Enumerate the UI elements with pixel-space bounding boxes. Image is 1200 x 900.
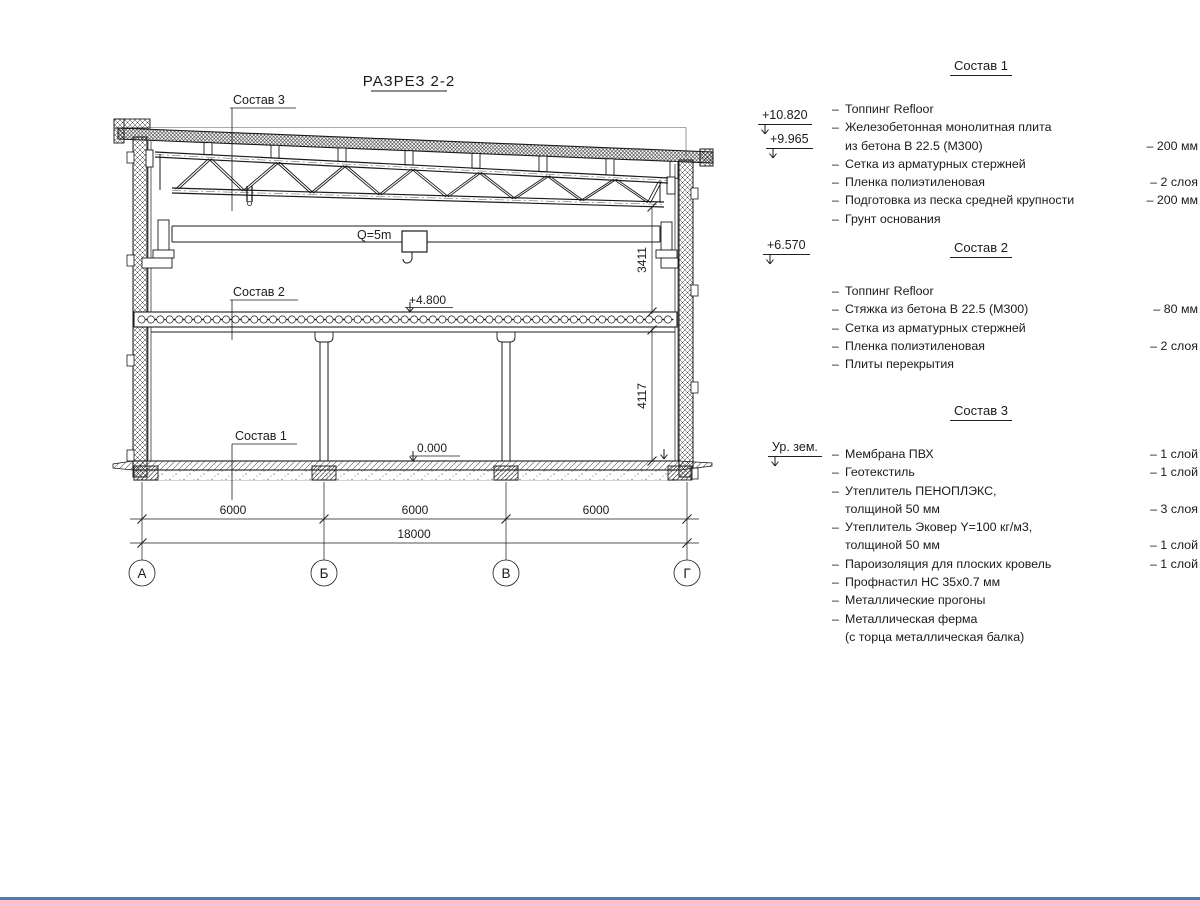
axis-V: В	[501, 566, 510, 581]
material-row: –Мембрана ПВХ– 1 слой	[832, 445, 1198, 463]
material-list-sostav-3: Состав 3 –Мембрана ПВХ– 1 слой–Геотексти…	[832, 402, 1198, 646]
dim-total: 18000	[397, 527, 431, 541]
sand-bed	[133, 470, 676, 480]
crane-beam: Q=5m	[142, 220, 678, 268]
axis-G: Г	[683, 566, 691, 581]
column-B-axis	[315, 332, 333, 461]
elevation-label: +6.570	[767, 238, 806, 252]
elevation-slab: +4.800	[405, 293, 453, 308]
elevation-label: Ур. зем.	[772, 440, 818, 454]
material-row: –Стяжка из бетона В 22.5 (М300)– 80 мм	[832, 300, 1198, 318]
vertical-dimensions: 3411 4117	[635, 206, 652, 462]
svg-text:0.000: 0.000	[417, 441, 447, 455]
material-items: –Топпинг Refloor–Стяжка из бетона В 22.5…	[832, 282, 1198, 373]
truss-bearing-right	[667, 177, 675, 194]
column-V-axis	[497, 332, 515, 461]
section-heading: Состав 3	[950, 403, 1012, 421]
material-row: –Утеплитель Эковер Y=100 кг/м3,	[832, 518, 1198, 536]
material-items: –Мембрана ПВХ– 1 слой–Геотекстиль– 1 сло…	[832, 445, 1198, 646]
material-items: –Топпинг Refloor–Железобетонная монолитн…	[832, 100, 1198, 228]
elevation-mark-6570: +6.570	[763, 238, 810, 255]
left-wall	[133, 137, 151, 477]
eave-end-cap	[700, 149, 713, 166]
material-row: –Сетка из арматурных стержней	[832, 155, 1198, 173]
material-row: –Пароизоляция для плоских кровель– 1 сло…	[832, 555, 1198, 573]
intermediate-slab	[134, 312, 677, 332]
svg-text:+4.800: +4.800	[409, 293, 446, 307]
material-row: –Плиты перекрытия	[832, 355, 1198, 373]
material-row: –Металлическая ферма	[832, 610, 1198, 628]
svg-text:Состав 3: Состав 3	[233, 93, 285, 107]
material-row: –Металлические прогоны	[832, 591, 1198, 609]
axis-B: Б	[320, 566, 329, 581]
material-row: толщиной 50 мм– 1 слой	[832, 536, 1198, 554]
section-heading: Состав 2	[950, 240, 1012, 258]
crane-capacity-label: Q=5m	[357, 228, 391, 242]
dim-4117: 4117	[635, 383, 649, 409]
svg-text:Состав 1: Состав 1	[235, 429, 287, 443]
dim-span-2: 6000	[402, 503, 429, 517]
dim-3411: 3411	[635, 247, 649, 273]
material-row: –Грунт основания	[832, 210, 1198, 228]
elevation-arrow-icon	[767, 148, 779, 162]
material-row: –Пленка полиэтиленовая– 2 слоя	[832, 337, 1198, 355]
drawing-title: РАЗРЕЗ 2-2	[363, 73, 456, 91]
material-row: –Пленка полиэтиленовая– 2 слоя	[832, 173, 1198, 191]
interior-columns	[315, 332, 515, 461]
right-wall	[675, 160, 693, 477]
svg-text:Состав 2: Состав 2	[233, 285, 285, 299]
material-row: –Подготовка из песка средней крупности– …	[832, 191, 1198, 209]
crane-hook	[403, 252, 412, 263]
dim-span-3: 6000	[583, 503, 610, 517]
material-row: –Железобетонная монолитная плита	[832, 118, 1198, 136]
material-list-sostav-2: Состав 2 –Топпинг Refloor–Стяжка из бето…	[832, 239, 1198, 373]
truss-bearing-left	[146, 150, 153, 167]
section-heading: Состав 1	[950, 58, 1012, 76]
material-row: из бетона В 22.5 (М300)– 200 мм	[832, 137, 1198, 155]
material-row: –Топпинг Refloor	[832, 100, 1198, 118]
elevation-mark-ground: Ур. зем.	[768, 440, 822, 457]
section-title-text: РАЗРЕЗ 2-2	[363, 73, 456, 90]
material-row: толщиной 50 мм– 3 слоя	[832, 500, 1198, 518]
elevation-mark-9965: +9.965	[766, 132, 813, 149]
section-drawing: РАЗРЕЗ 2-2	[0, 0, 760, 660]
elevation-mark-10820: +10.820	[758, 108, 812, 125]
material-row: –Топпинг Refloor	[832, 282, 1198, 300]
elevation-label: +10.820	[762, 108, 808, 122]
material-row: –Геотекстиль– 1 слой	[832, 463, 1198, 481]
axis-A: А	[137, 566, 146, 581]
horizontal-dimensions: 6000 6000 6000 18000	[130, 203, 699, 561]
elevation-label: +9.965	[770, 132, 809, 146]
ground-floor	[113, 461, 712, 481]
elevation-arrow-icon	[764, 254, 776, 268]
dim-span-1: 6000	[220, 503, 247, 517]
material-list-sostav-1: Состав 1 –Топпинг Refloor–Железобетонная…	[832, 57, 1198, 228]
apron-left	[113, 461, 133, 470]
axis-bubbles: А Б В Г	[129, 560, 700, 586]
elevation-floor: 0.000	[410, 441, 460, 456]
material-row: –Утеплитель ПЕНОПЛЭКС,	[832, 482, 1198, 500]
callouts: Состав 3 Состав 2 Состав 1	[230, 93, 298, 500]
material-row: –Профнастил НС 35х0.7 мм	[832, 573, 1198, 591]
material-row: (с торца металлическая балка)	[832, 628, 1198, 646]
drawing-sheet: РАЗРЕЗ 2-2	[0, 0, 1200, 900]
elevation-arrow-icon	[769, 456, 781, 470]
crane-trolley	[402, 231, 427, 263]
material-row: –Сетка из арматурных стержней	[832, 319, 1198, 337]
